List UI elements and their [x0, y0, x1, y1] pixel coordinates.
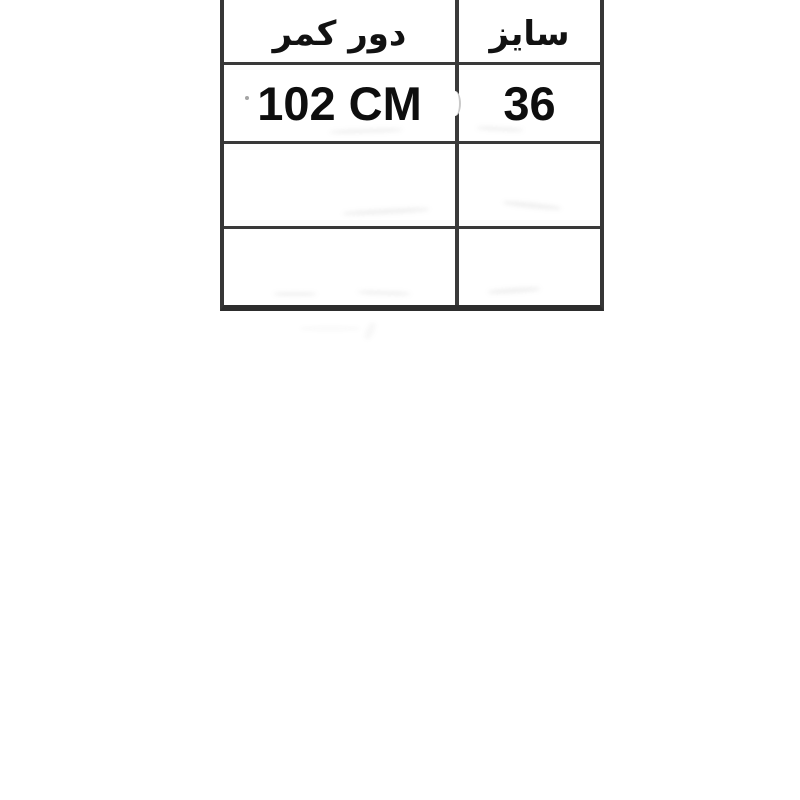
table-header-row: دور کمر سایز	[224, 0, 600, 65]
waist-value-cell	[224, 229, 459, 305]
waist-column-header: دور کمر	[273, 11, 407, 59]
size-chart-table: دور کمر سایز 102 CM 36	[220, 0, 604, 311]
size-value-cell	[459, 229, 600, 305]
waist-value-cell	[224, 144, 459, 226]
table-row: 102 CM 36	[224, 65, 600, 144]
header-cell-waist: دور کمر	[224, 0, 459, 62]
smudge-artifact	[300, 327, 360, 330]
size-value-cell	[459, 144, 600, 226]
size-value: 36	[503, 76, 555, 131]
speck-artifact	[245, 96, 249, 100]
page-canvas: دور کمر سایز 102 CM 36	[0, 0, 800, 800]
size-column-header: سایز	[489, 11, 569, 59]
header-cell-size: سایز	[459, 0, 600, 62]
table-row	[224, 144, 600, 229]
size-value-cell: 36	[459, 65, 600, 141]
waist-value: 102 CM	[257, 76, 422, 131]
smudge-artifact	[363, 321, 378, 341]
smudge-artifact	[274, 292, 316, 296]
divider-notch-artifact	[449, 91, 461, 116]
